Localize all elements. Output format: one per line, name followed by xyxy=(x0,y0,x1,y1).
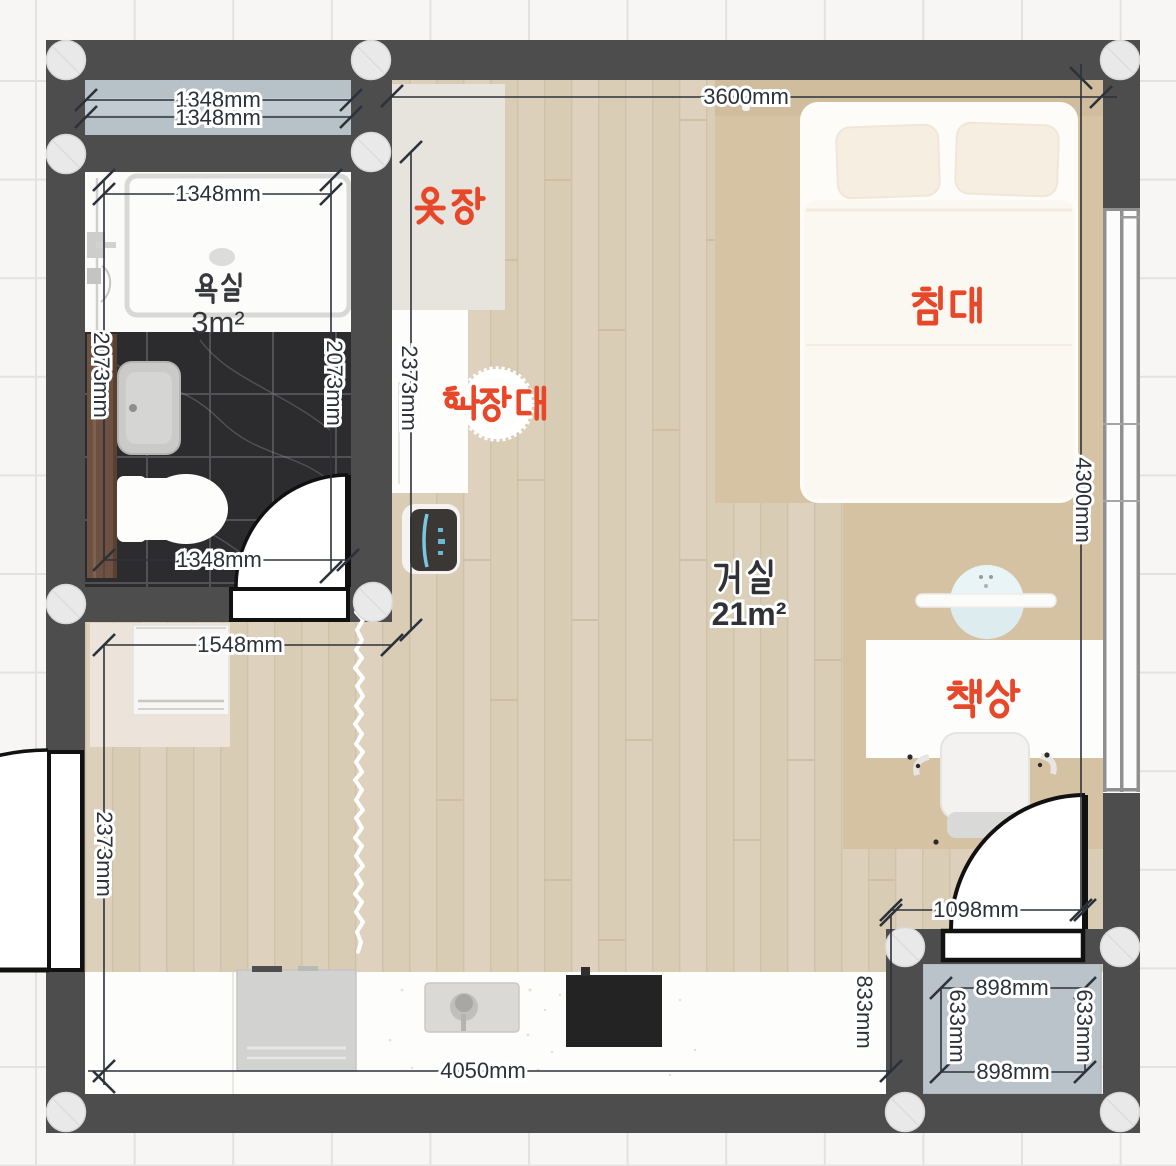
svg-text:3m²: 3m² xyxy=(191,305,244,340)
svg-text:1348mm: 1348mm xyxy=(175,181,261,206)
svg-text:633mm: 633mm xyxy=(945,989,970,1062)
svg-text:4050mm: 4050mm xyxy=(440,1058,526,1083)
svg-text:898mm: 898mm xyxy=(976,1059,1049,1084)
svg-text:898mm: 898mm xyxy=(975,975,1048,1000)
svg-text:833mm: 833mm xyxy=(852,975,877,1048)
svg-text:2073mm: 2073mm xyxy=(322,340,347,426)
svg-text:3600mm: 3600mm xyxy=(703,84,789,109)
svg-text:1098mm: 1098mm xyxy=(933,897,1019,922)
svg-text:21m²: 21m² xyxy=(712,596,787,632)
svg-text:1348mm: 1348mm xyxy=(175,105,261,130)
svg-text:4300mm: 4300mm xyxy=(1071,457,1096,543)
svg-text:1348mm: 1348mm xyxy=(176,547,262,572)
svg-text:2373mm: 2373mm xyxy=(397,345,422,431)
svg-text:2073mm: 2073mm xyxy=(89,332,114,418)
svg-text:1548mm: 1548mm xyxy=(197,632,283,657)
svg-text:633mm: 633mm xyxy=(1072,989,1097,1062)
svg-text:2373mm: 2373mm xyxy=(92,811,117,897)
